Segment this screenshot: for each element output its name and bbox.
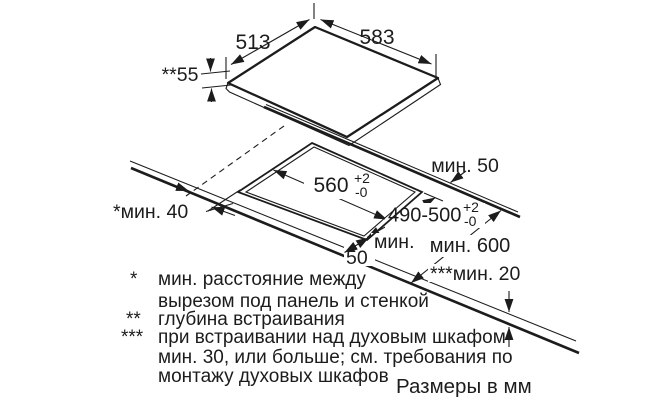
label-worktop-depth: мин. 600 bbox=[430, 235, 510, 257]
label-panel-width: 583 bbox=[359, 26, 394, 49]
footnotes: * мин. расстояние между вырезом под пане… bbox=[121, 269, 513, 387]
cutout-depth-value: 490-500 bbox=[388, 205, 461, 227]
cutout-extension-right bbox=[424, 193, 443, 201]
label-cutout-width: 560 +2 -0 bbox=[313, 170, 370, 200]
front-clearance-line1: мин. bbox=[374, 231, 415, 253]
footnote3-line2: мин. 30, или больше; см. требования по bbox=[158, 347, 513, 368]
units-note: Размеры в мм bbox=[396, 375, 532, 398]
cutout-depth-tol-down: -0 bbox=[464, 213, 477, 229]
label-bottom-clearance: ***мин. 20 bbox=[430, 263, 521, 285]
cutout-width-value: 560 bbox=[313, 174, 348, 197]
projection-dashed-line bbox=[186, 126, 284, 196]
label-side-clearance: *мин. 40 bbox=[113, 201, 188, 223]
label-rear-clearance: мин. 50 bbox=[431, 155, 499, 177]
footnote3-marker: *** bbox=[121, 327, 144, 348]
footnote3-line1: при встраивании над духовым шкафом bbox=[158, 327, 506, 348]
installation-diagram: 513 583 **55 мин. 50 560 +2 -0 490-500 +… bbox=[0, 0, 650, 400]
footnote1-marker: * bbox=[130, 269, 138, 290]
front-clearance-line2: 50 bbox=[346, 247, 368, 269]
diagram-canvas: 513 583 **55 мин. 50 560 +2 -0 490-500 +… bbox=[0, 0, 650, 400]
footnote3-line3: монтажу духовых шкафов bbox=[158, 366, 389, 387]
label-panel-depth: 513 bbox=[235, 31, 270, 54]
footnote1-line1: мин. расстояние между bbox=[158, 269, 366, 290]
label-install-depth: **55 bbox=[162, 64, 199, 86]
cutout-width-tol-down: -0 bbox=[355, 184, 368, 200]
